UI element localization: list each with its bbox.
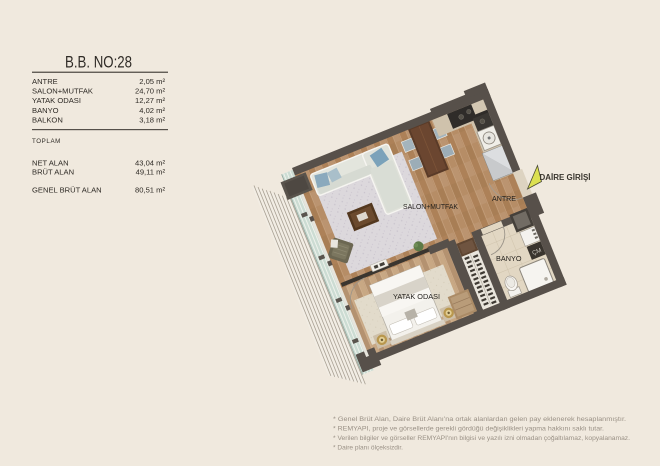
- svg-text:24,70 m²: 24,70 m²: [135, 87, 165, 96]
- svg-text:SALON+MUTFAK: SALON+MUTFAK: [32, 87, 93, 96]
- svg-text:TOPLAM: TOPLAM: [32, 138, 61, 145]
- svg-text:43,04 m²: 43,04 m²: [135, 159, 165, 168]
- svg-text:49,11 m²: 49,11 m²: [136, 168, 166, 177]
- svg-text:3,18 m²: 3,18 m²: [139, 115, 165, 124]
- svg-text:DAİRE GİRİŞİ: DAİRE GİRİŞİ: [540, 172, 591, 182]
- svg-text:BANYO: BANYO: [32, 106, 59, 115]
- svg-text:12,27 m²: 12,27 m²: [135, 96, 165, 105]
- svg-text:* Daire planı ölçeksizdir.: * Daire planı ölçeksizdir.: [333, 445, 403, 452]
- svg-text:* Verilen bilgiler ve görselle: * Verilen bilgiler ve görseller REMYAPI'…: [333, 435, 630, 442]
- svg-text:NET ALAN: NET ALAN: [32, 159, 69, 168]
- svg-text:* Genel Brüt Alan, Daire Brüt: * Genel Brüt Alan, Daire Brüt Alanı'na o…: [333, 416, 626, 423]
- svg-text:BANYO: BANYO: [496, 256, 522, 263]
- svg-text:2,05 m²: 2,05 m²: [139, 77, 165, 86]
- svg-text:BRÜT ALAN: BRÜT ALAN: [32, 168, 74, 177]
- svg-text:B.B. NO:28: B.B. NO:28: [65, 54, 132, 72]
- svg-text:* REMYAPI, proje ve görsellerd: * REMYAPI, proje ve görsellerde gerekli …: [333, 426, 604, 433]
- svg-text:GENEL BRÜT ALAN: GENEL BRÜT ALAN: [32, 186, 102, 195]
- svg-text:ANTRE: ANTRE: [32, 77, 58, 86]
- svg-text:ANTRE: ANTRE: [492, 196, 516, 203]
- svg-text:80,51 m²: 80,51 m²: [135, 186, 165, 195]
- svg-text:SALON+MUTFAK: SALON+MUTFAK: [403, 204, 458, 211]
- svg-text:YATAK ODASI: YATAK ODASI: [393, 294, 440, 301]
- svg-text:YATAK ODASI: YATAK ODASI: [32, 96, 81, 105]
- svg-text:4,02 m²: 4,02 m²: [139, 106, 165, 115]
- svg-text:BALKON: BALKON: [32, 115, 63, 124]
